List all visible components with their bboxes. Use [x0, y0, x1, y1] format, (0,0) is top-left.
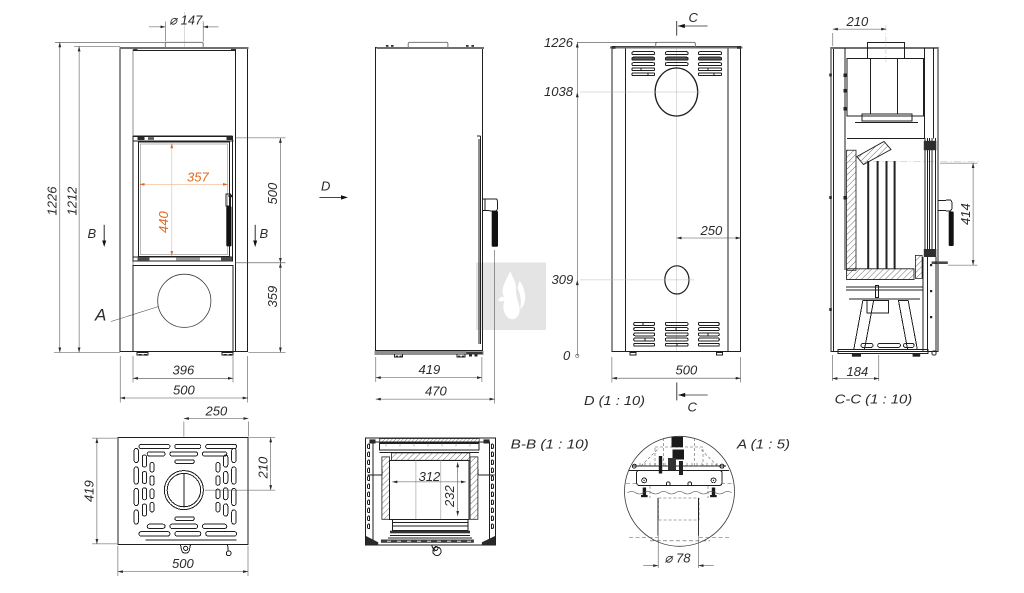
- svg-text:1038: 1038: [544, 84, 574, 99]
- svg-text:⌀ 78: ⌀ 78: [665, 550, 692, 565]
- svg-text:D: D: [321, 179, 330, 194]
- svg-text:250: 250: [700, 223, 723, 238]
- svg-text:C: C: [688, 399, 698, 414]
- svg-text:1226: 1226: [45, 186, 60, 216]
- svg-text:1212: 1212: [64, 186, 79, 216]
- svg-text:500: 500: [265, 182, 280, 204]
- svg-text:500: 500: [172, 556, 194, 571]
- svg-text:A: A: [94, 306, 106, 325]
- svg-text:C: C: [689, 10, 699, 25]
- svg-text:D (1 : 10): D (1 : 10): [584, 393, 645, 408]
- svg-text:⌀ 147: ⌀ 147: [169, 12, 203, 27]
- svg-text:A (1 : 5): A (1 : 5): [736, 436, 790, 451]
- svg-text:500: 500: [173, 382, 195, 397]
- svg-text:B: B: [88, 226, 97, 241]
- svg-text:210: 210: [255, 456, 270, 479]
- svg-text:0: 0: [563, 348, 571, 363]
- svg-text:419: 419: [82, 480, 97, 502]
- svg-text:357: 357: [187, 170, 209, 185]
- svg-text:B-B (1 : 10): B-B (1 : 10): [511, 437, 589, 452]
- svg-text:309: 309: [552, 272, 574, 287]
- svg-text:B: B: [260, 226, 269, 241]
- svg-text:210: 210: [846, 14, 869, 29]
- svg-text:419: 419: [419, 362, 441, 377]
- svg-text:359: 359: [265, 286, 280, 308]
- svg-text:312: 312: [419, 469, 441, 484]
- svg-text:184: 184: [847, 364, 869, 379]
- svg-text:470: 470: [425, 384, 447, 399]
- svg-text:C-C (1 : 10): C-C (1 : 10): [835, 391, 913, 406]
- svg-text:232: 232: [442, 485, 457, 508]
- svg-text:414: 414: [958, 203, 973, 225]
- svg-text:500: 500: [676, 362, 698, 377]
- svg-text:440: 440: [156, 211, 171, 233]
- svg-text:396: 396: [173, 363, 195, 378]
- svg-text:250: 250: [205, 403, 228, 418]
- svg-text:1226: 1226: [544, 35, 574, 50]
